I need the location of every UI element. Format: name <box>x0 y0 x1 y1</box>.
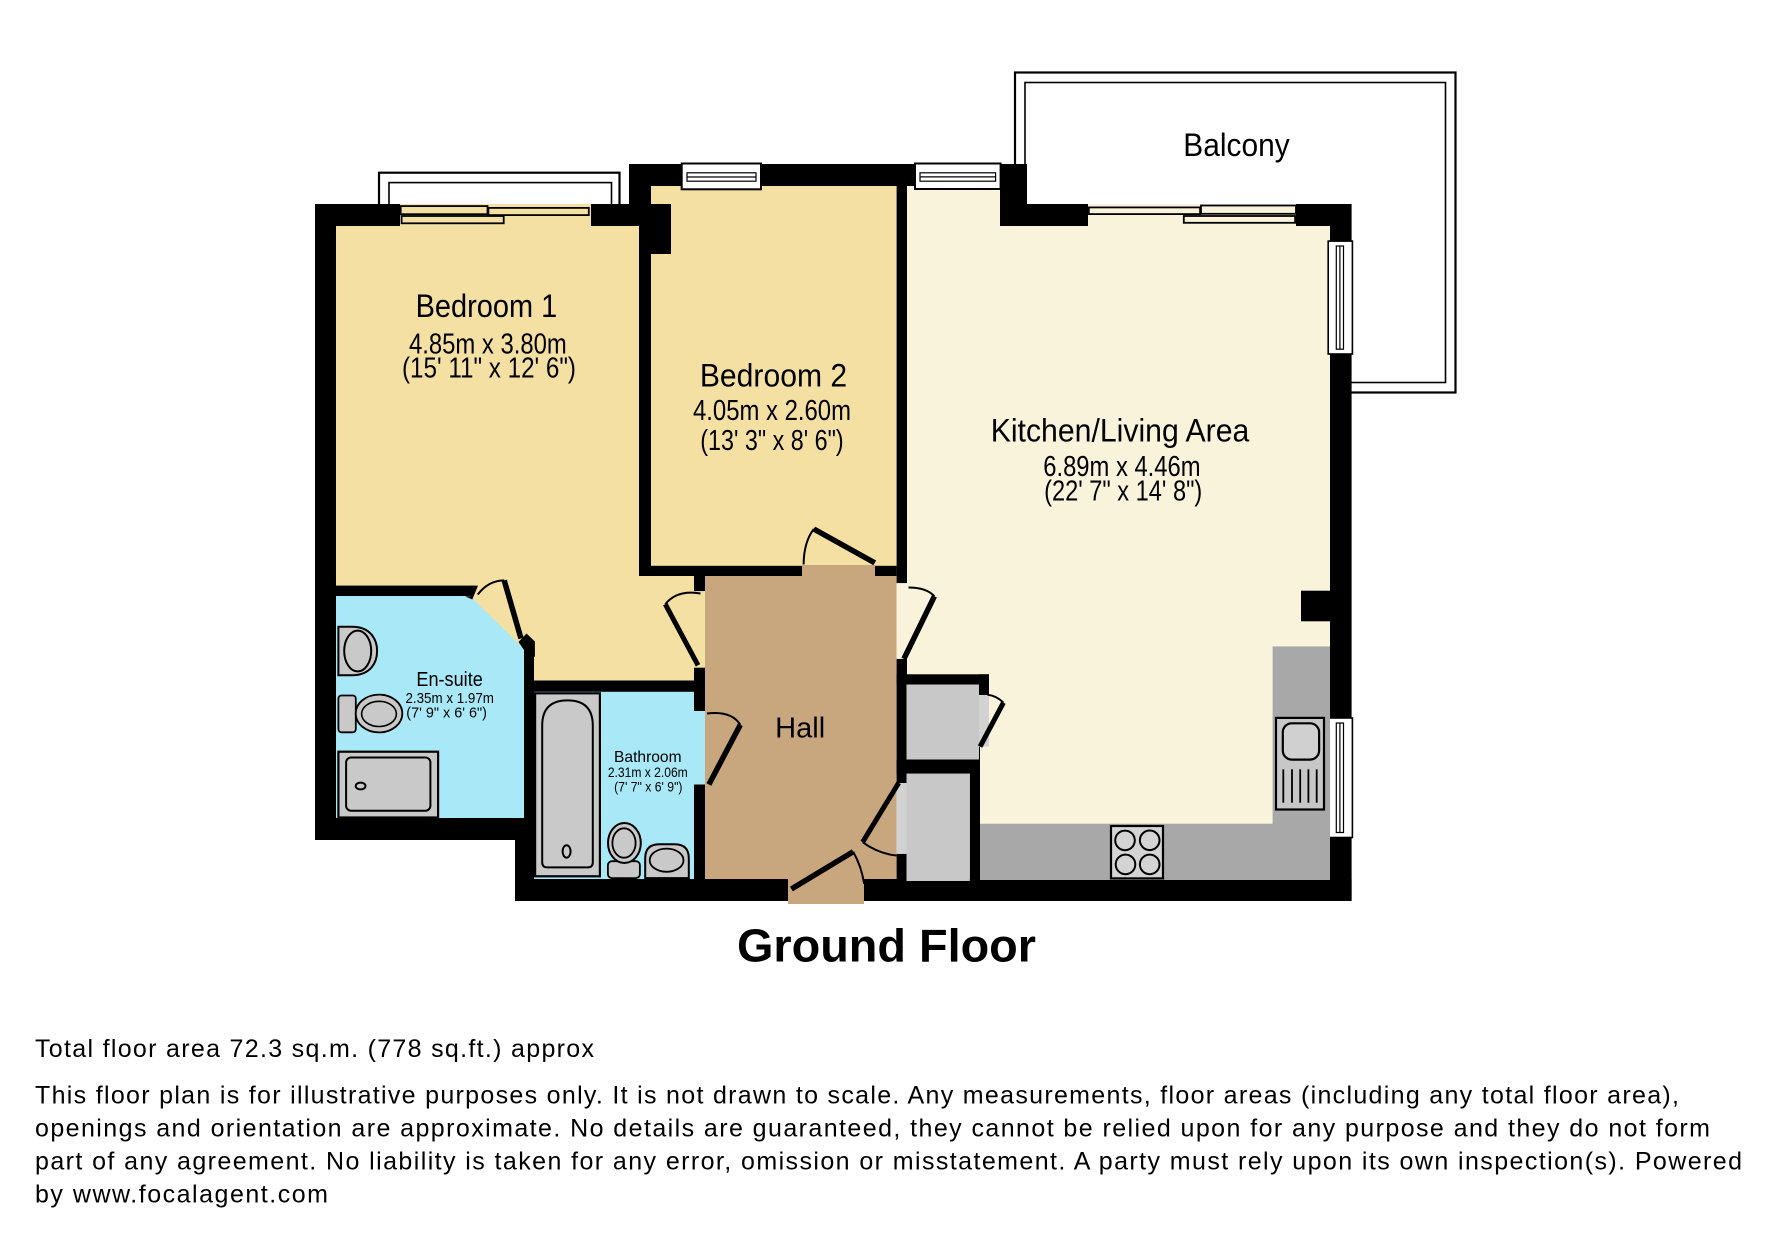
svg-text:(15' 11" x 12' 6"): (15' 11" x 12' 6") <box>402 352 576 384</box>
svg-text:part of any agreement. No liab: part of any agreement. No liability is t… <box>35 1148 1742 1176</box>
svg-text:Bathroom: Bathroom <box>614 749 682 766</box>
svg-text:(22' 7" x 14' 8"): (22' 7" x 14' 8") <box>1044 475 1202 507</box>
svg-text:openings and orientation are a: openings and orientation are approximate… <box>35 1115 1710 1143</box>
svg-text:This floor plan is for illustr: This floor plan is for illustrative purp… <box>35 1082 1679 1110</box>
svg-text:(7' 9" x 6' 6"): (7' 9" x 6' 6") <box>406 705 487 722</box>
svg-text:Balcony: Balcony <box>1183 127 1289 163</box>
svg-text:Kitchen/Living Area: Kitchen/Living Area <box>991 413 1250 449</box>
svg-text:2.31m x 2.06m: 2.31m x 2.06m <box>608 765 688 780</box>
svg-text:En-suite: En-suite <box>416 669 482 691</box>
svg-text:(13' 3" x 8' 6"): (13' 3" x 8' 6") <box>700 425 843 457</box>
svg-text:Total floor area 72.3 sq.m. (7: Total floor area 72.3 sq.m. (778 sq.ft.)… <box>35 1035 595 1063</box>
svg-text:4.05m x 2.60m: 4.05m x 2.60m <box>693 395 851 427</box>
svg-text:(7' 7" x 6' 9"): (7' 7" x 6' 9") <box>614 780 682 795</box>
svg-text:Bedroom 1: Bedroom 1 <box>416 288 558 324</box>
svg-text:Ground Floor: Ground Floor <box>737 920 1036 972</box>
svg-text:by www.focalagent.com: by www.focalagent.com <box>35 1181 328 1209</box>
svg-text:Hall: Hall <box>775 713 825 745</box>
svg-text:Bedroom 2: Bedroom 2 <box>700 357 847 393</box>
